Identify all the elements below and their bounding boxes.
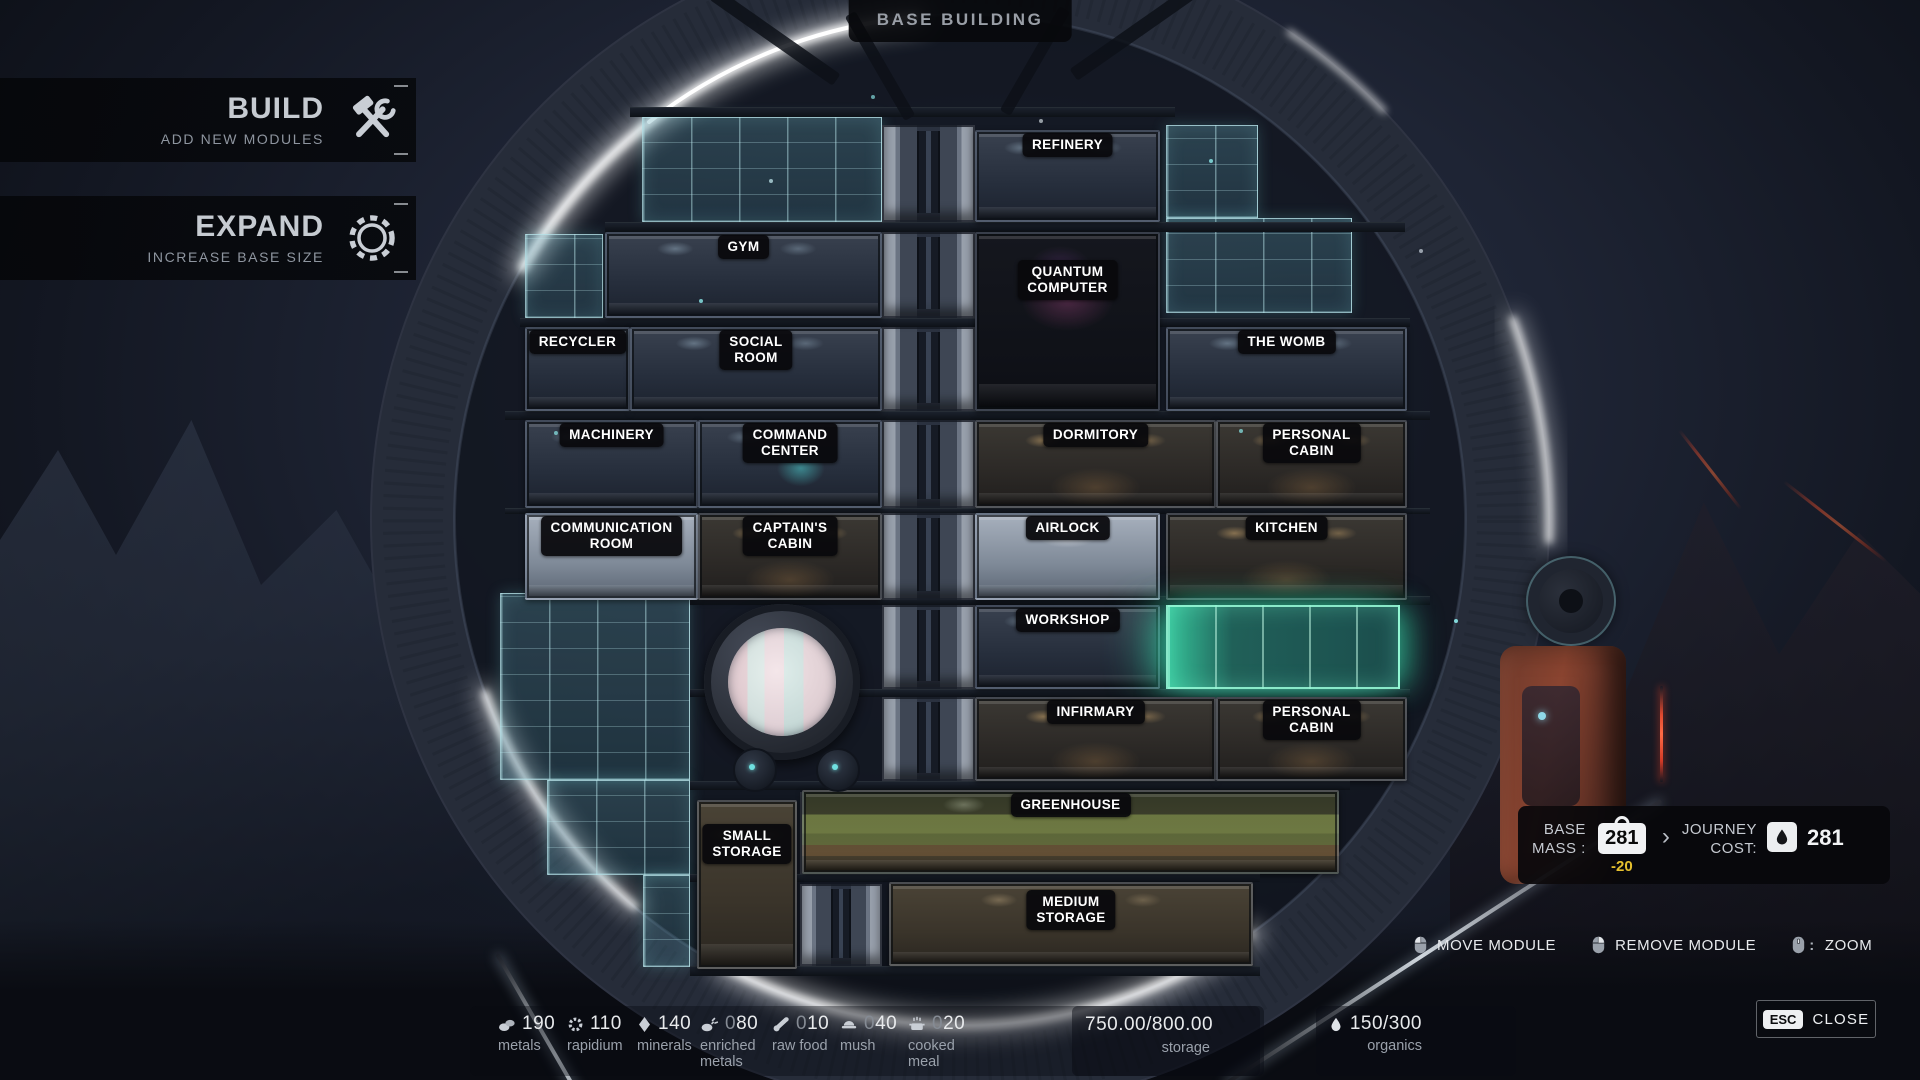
mouse-right-icon <box>1592 936 1605 954</box>
expand-button[interactable]: EXPAND INCREASE BASE SIZE <box>0 196 416 280</box>
porthole-static-window <box>728 628 836 736</box>
raw-food-icon <box>772 1016 790 1033</box>
mouse-controls: MOVE MODULEREMOVE MODULE:ZOOM <box>1414 936 1872 954</box>
build-label: BUILD <box>161 94 324 124</box>
control-label: REMOVE MODULE <box>1615 937 1756 954</box>
resource-label: minerals <box>637 1039 692 1055</box>
fuel-droplet-icon <box>1767 822 1797 852</box>
resource-enriched-metals: 080enriched metals <box>700 1014 758 1070</box>
base-wheel-ring <box>0 0 1920 1080</box>
mush-icon <box>840 1016 858 1033</box>
resource-label: enriched metals <box>700 1039 758 1070</box>
resource-value: 010 <box>796 1013 829 1035</box>
storage-value: 750.00/800.00 <box>1085 1014 1210 1036</box>
close-button[interactable]: ESC CLOSE <box>1756 1000 1876 1038</box>
enriched-metals-icon <box>700 1016 719 1033</box>
minerals-icon <box>637 1016 652 1033</box>
base-building-screen: REFINERYGYMQUANTUM COMPUTERRECYCLERSOCIA… <box>0 0 1920 1080</box>
resource-value: 040 <box>864 1013 897 1035</box>
resource-minerals: 140minerals <box>637 1014 692 1055</box>
hub-pod <box>733 748 777 792</box>
control-remove-module: REMOVE MODULE <box>1592 936 1756 954</box>
resource-rapidium: 110rapidium <box>567 1014 623 1055</box>
build-sublabel: ADD NEW MODULES <box>161 131 324 147</box>
light-specks <box>0 0 2 2</box>
arm-light <box>1538 712 1546 720</box>
gear-icon <box>346 212 398 264</box>
weight-icon: 281 -20 <box>1598 823 1646 854</box>
expand-label: EXPAND <box>147 212 324 242</box>
resource-label: rapidium <box>567 1039 623 1055</box>
hammer-wrench-icon <box>346 94 398 146</box>
weight-knob <box>1614 816 1629 831</box>
scroll-ticks: : <box>1809 937 1815 954</box>
mouse-wheel-icon <box>1792 936 1805 954</box>
resource-label: metals <box>498 1039 555 1055</box>
build-button[interactable]: BUILD ADD NEW MODULES <box>0 78 416 162</box>
mass-delta: -20 <box>1598 858 1646 875</box>
rapidium-icon <box>567 1016 584 1033</box>
mouse-left-icon <box>1414 936 1427 954</box>
organics-label: organics <box>1330 1039 1422 1055</box>
control-zoom: :ZOOM <box>1792 936 1872 954</box>
journey-cost-caption: JOURNEY COST: <box>1682 821 1757 859</box>
metals-icon <box>498 1016 516 1033</box>
resource-value: 080 <box>725 1013 758 1035</box>
chevron-right-icon: › <box>1662 825 1670 849</box>
resource-value: 140 <box>658 1013 691 1035</box>
resource-mush: 040mush <box>840 1014 897 1055</box>
esc-key-badge: ESC <box>1763 1010 1804 1029</box>
hub-pod <box>816 748 860 792</box>
control-move-module: MOVE MODULE <box>1414 936 1556 954</box>
red-laser-beam <box>1660 686 1663 782</box>
page-title: BASE BUILDING <box>849 0 1072 42</box>
resource-metals: 190metals <box>498 1014 555 1055</box>
mass-journey-panel: BASE MASS : 281 -20 › JOURNEY COST: 281 <box>1518 806 1890 884</box>
expand-sublabel: INCREASE BASE SIZE <box>147 249 324 265</box>
arm-camera-eye <box>1526 556 1616 646</box>
resource-value: 020 <box>932 1013 965 1035</box>
cooked-meal-icon <box>908 1015 926 1033</box>
resource-label: cooked meal <box>908 1039 965 1070</box>
journey-cost-value: 281 <box>1807 825 1844 851</box>
organics-readout: 150/300 organics <box>1330 1014 1422 1055</box>
hub-porthole <box>704 604 860 760</box>
storage-label: storage <box>1085 1041 1210 1057</box>
resource-value: 110 <box>590 1013 622 1035</box>
resource-label: raw food <box>772 1039 829 1055</box>
storage-readout: 750.00/800.00 storage <box>1085 1014 1210 1057</box>
close-label: CLOSE <box>1812 1011 1869 1028</box>
control-label: ZOOM <box>1825 937 1872 954</box>
organics-value: 150/300 <box>1350 1013 1422 1035</box>
resource-value: 190 <box>522 1013 555 1035</box>
control-label: MOVE MODULE <box>1437 937 1556 954</box>
base-mass-caption: BASE MASS : <box>1532 821 1586 859</box>
arm-plate <box>1522 686 1580 806</box>
resource-label: mush <box>840 1039 897 1055</box>
resource-raw-food: 010raw food <box>772 1014 829 1055</box>
droplet-icon <box>1329 1016 1343 1033</box>
resource-cooked-meal: 020cooked meal <box>908 1014 965 1070</box>
